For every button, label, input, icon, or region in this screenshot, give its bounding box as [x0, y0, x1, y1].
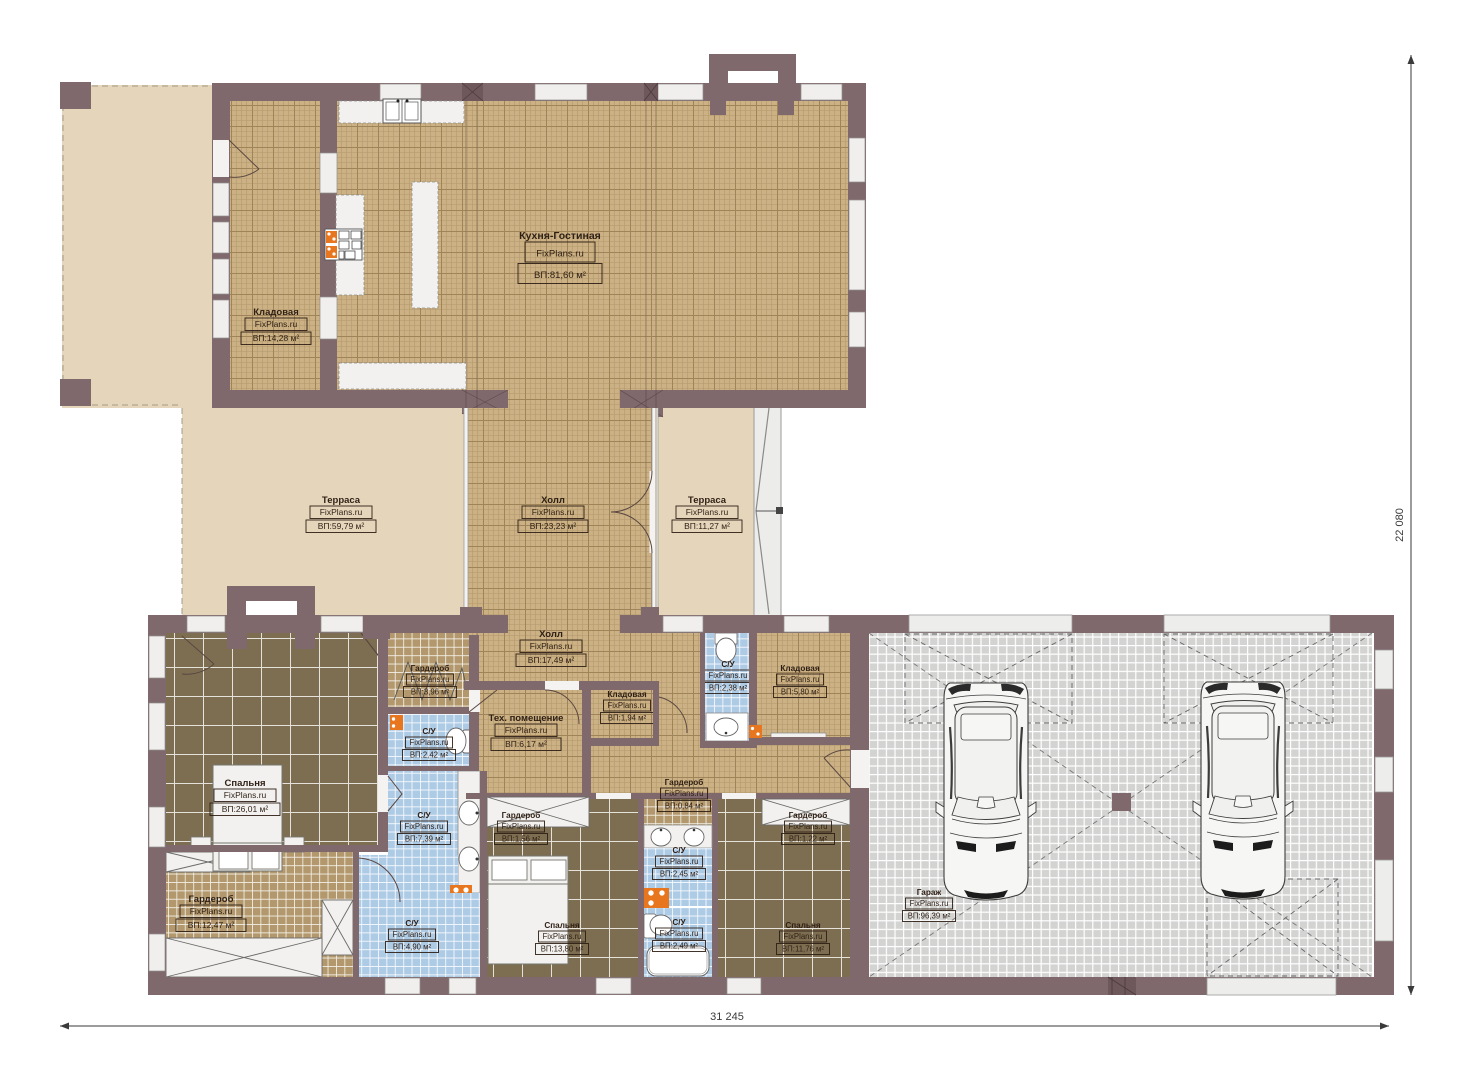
svg-text:ВП:2,42 м²: ВП:2,42 м²	[410, 751, 449, 760]
svg-text:Гардероб: Гардероб	[189, 894, 234, 905]
svg-text:Кухня-Гостиная: Кухня-Гостиная	[519, 230, 601, 242]
svg-text:FixPlans.ru: FixPlans.ru	[665, 789, 704, 798]
svg-text:Холл: Холл	[541, 495, 565, 506]
svg-text:FixPlans.ru: FixPlans.ru	[502, 822, 541, 831]
svg-text:Спальня: Спальня	[544, 921, 580, 930]
svg-text:Кладовая: Кладовая	[607, 690, 646, 699]
svg-text:ВП:2,45 м²: ВП:2,45 м²	[660, 870, 699, 879]
svg-text:ВП:11,27 м²: ВП:11,27 м²	[684, 521, 730, 531]
svg-text:ВП:23,23 м²: ВП:23,23 м²	[530, 521, 577, 531]
svg-text:FixPlans.ru: FixPlans.ru	[532, 507, 575, 517]
svg-text:FixPlans.ru: FixPlans.ru	[660, 857, 699, 866]
svg-text:FixPlans.ru: FixPlans.ru	[405, 822, 444, 831]
svg-text:22 080: 22 080	[1394, 508, 1406, 542]
svg-text:ВП:5,80 м²: ВП:5,80 м²	[781, 688, 820, 697]
svg-text:Гардероб: Гардероб	[502, 810, 541, 820]
svg-text:Кладовая: Кладовая	[780, 664, 819, 673]
svg-text:ВП:1,22 м²: ВП:1,22 м²	[789, 835, 828, 844]
svg-text:FixPlans.ru: FixPlans.ru	[789, 822, 828, 831]
svg-text:FixPlans.ru: FixPlans.ru	[784, 932, 823, 941]
svg-text:ВП:13,80 м²: ВП:13,80 м²	[541, 945, 584, 954]
svg-text:FixPlans.ru: FixPlans.ru	[410, 738, 449, 747]
svg-text:FixPlans.ru: FixPlans.ru	[910, 899, 949, 908]
svg-text:FixPlans.ru: FixPlans.ru	[411, 675, 450, 684]
svg-text:ВП:2,49 м²: ВП:2,49 м²	[660, 942, 699, 951]
svg-text:ВП:81,60 м²: ВП:81,60 м²	[534, 270, 586, 281]
svg-text:С/У: С/У	[721, 660, 735, 669]
svg-text:FixPlans.ru: FixPlans.ru	[543, 932, 582, 941]
svg-text:FixPlans.ru: FixPlans.ru	[781, 675, 820, 684]
svg-text:ВП:3,96 м²: ВП:3,96 м²	[411, 688, 450, 697]
svg-text:ВП:96,39 м²: ВП:96,39 м²	[908, 912, 951, 921]
svg-text:FixPlans.ru: FixPlans.ru	[530, 641, 573, 651]
svg-text:FixPlans.ru: FixPlans.ru	[320, 507, 363, 517]
svg-text:Гардероб: Гардероб	[665, 777, 704, 787]
svg-text:С/У: С/У	[405, 919, 419, 928]
svg-text:ВП:17,49 м²: ВП:17,49 м²	[528, 655, 575, 665]
svg-text:Спальня: Спальня	[224, 778, 265, 789]
svg-text:FixPlans.ru: FixPlans.ru	[686, 507, 729, 517]
svg-text:FixPlans.ru: FixPlans.ru	[393, 930, 432, 939]
svg-text:Кладовая: Кладовая	[253, 307, 299, 318]
svg-text:ВП:7,39 м²: ВП:7,39 м²	[405, 835, 444, 844]
svg-text:С/У: С/У	[672, 846, 686, 855]
svg-text:Гараж: Гараж	[917, 888, 942, 897]
svg-text:FixPlans.ru: FixPlans.ru	[608, 701, 647, 710]
svg-text:ВП:0,84 м²: ВП:0,84 м²	[665, 802, 704, 811]
svg-text:ВП:1,94 м²: ВП:1,94 м²	[608, 714, 647, 723]
svg-text:ВП:26,01 м²: ВП:26,01 м²	[222, 804, 269, 814]
svg-text:С/У: С/У	[672, 918, 686, 927]
svg-text:FixPlans.ru: FixPlans.ru	[255, 319, 298, 329]
svg-text:Гардероб: Гардероб	[411, 663, 450, 673]
svg-text:ВП:6,17 м²: ВП:6,17 м²	[505, 739, 547, 749]
svg-text:FixPlans.ru: FixPlans.ru	[709, 671, 748, 680]
svg-text:FixPlans.ru: FixPlans.ru	[536, 248, 584, 259]
svg-text:С/У: С/У	[417, 811, 431, 820]
svg-text:ВП:14,28 м²: ВП:14,28 м²	[253, 333, 300, 343]
svg-text:ВП:2,38 м²: ВП:2,38 м²	[709, 684, 748, 693]
svg-text:ВП:59,79 м²: ВП:59,79 м²	[318, 521, 365, 531]
svg-text:Тех. помещение: Тех. помещение	[489, 713, 564, 724]
svg-text:Холл: Холл	[539, 629, 563, 640]
svg-text:Спальня: Спальня	[785, 921, 821, 930]
svg-text:Гардероб: Гардероб	[789, 810, 828, 820]
svg-text:FixPlans.ru: FixPlans.ru	[660, 929, 699, 938]
svg-text:ВП:1,56 м²: ВП:1,56 м²	[502, 835, 541, 844]
svg-text:FixPlans.ru: FixPlans.ru	[505, 725, 548, 735]
svg-text:FixPlans.ru: FixPlans.ru	[224, 790, 267, 800]
svg-text:С/У: С/У	[422, 727, 436, 736]
svg-text:FixPlans.ru: FixPlans.ru	[190, 906, 233, 916]
svg-text:31 245: 31 245	[710, 1011, 744, 1023]
svg-text:ВП:4,90 м²: ВП:4,90 м²	[393, 943, 432, 952]
svg-text:Терраса: Терраса	[688, 495, 727, 506]
svg-text:Терраса: Терраса	[322, 495, 361, 506]
svg-text:ВП:11,76 м²: ВП:11,76 м²	[782, 945, 824, 954]
svg-text:ВП:12,47 м²: ВП:12,47 м²	[188, 920, 235, 930]
